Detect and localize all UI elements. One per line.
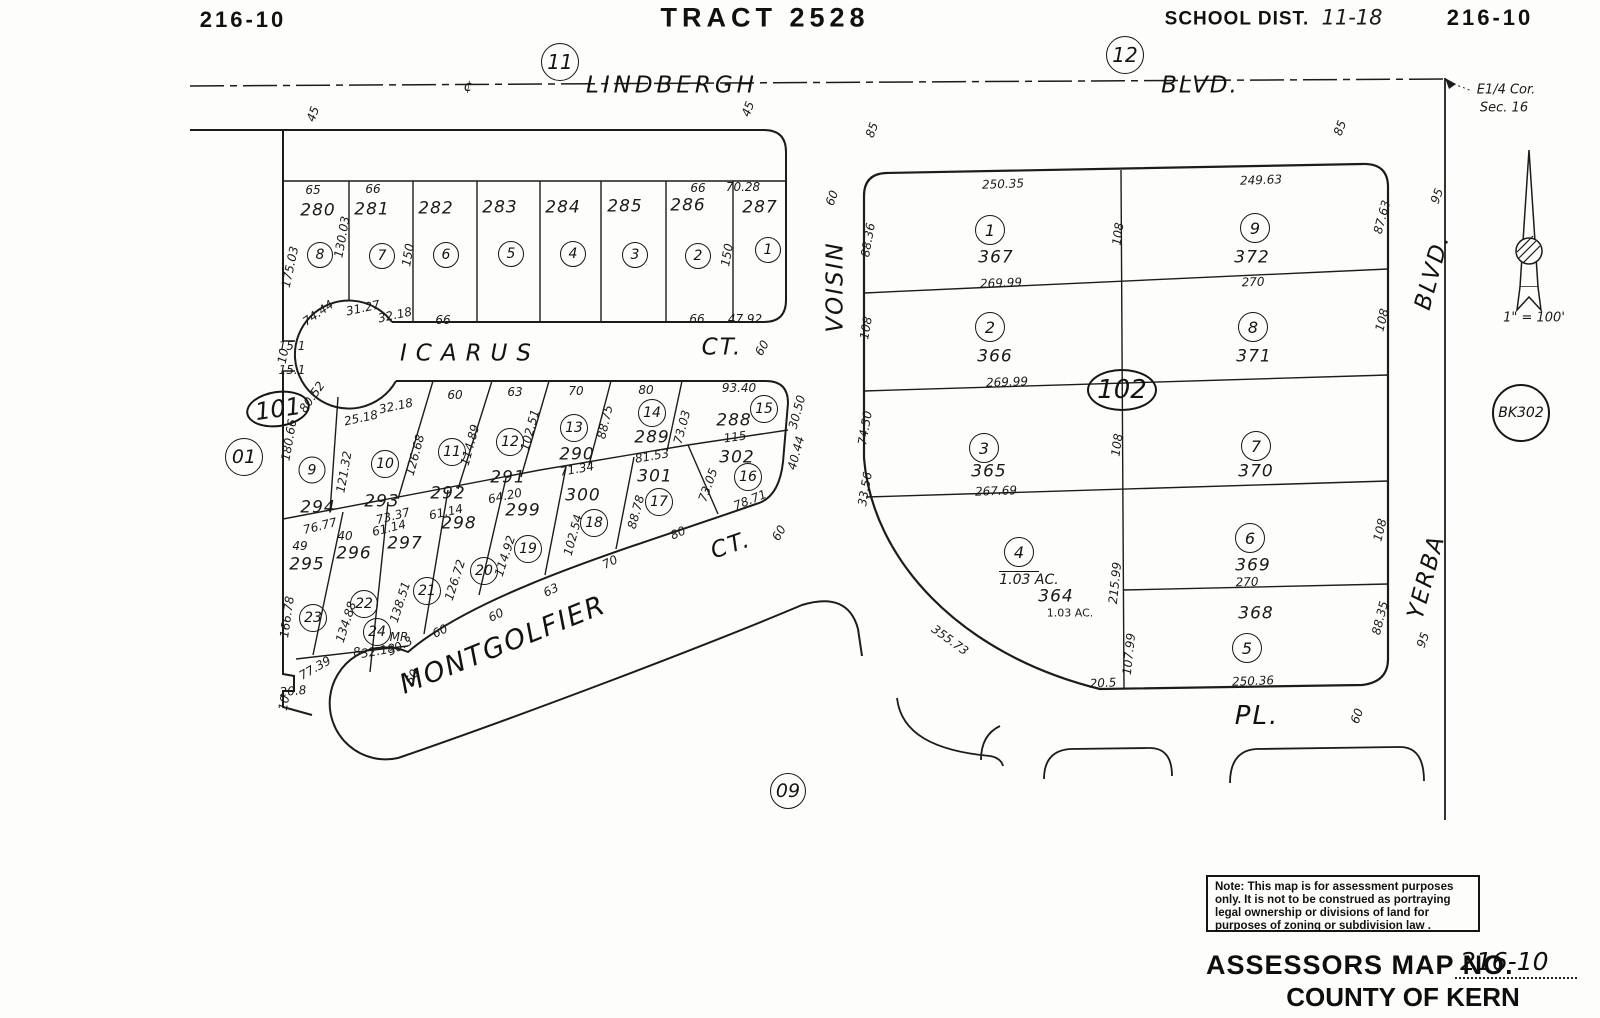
ref-circle-11: 11 [541,43,579,81]
ref-circle-01: 01 [225,438,263,476]
map-dimension-label: 364 [1038,589,1073,606]
map-dimension-label: 366 [977,349,1012,366]
corner-note-line2: Sec. 16 [1480,102,1528,115]
parcel-circle-7: 7 [369,243,395,269]
parcel-circle-16: 16 [734,463,762,491]
parcel-circle-9: 9 [299,457,326,484]
map-dimension-label: 287 [742,200,777,217]
map-dimension-label: 108 [1109,433,1124,457]
parcel-circle-14: 14 [638,399,666,427]
map-dimension-label: 293 [364,494,399,511]
map-dimension-label: 267.69 [975,484,1017,497]
map-dimension-label: 47.92 [728,313,762,325]
book-ref-circle: BK302 [1492,384,1550,442]
county-title: COUNTY OF KERN [1283,984,1523,1010]
map-dimension-label: 296 [336,546,371,563]
map-number-underline [1455,977,1577,979]
street-icarus-ct: CT. [702,337,743,360]
right-block-outline [864,164,1388,689]
map-dimension-label: 250.36 [1232,674,1274,687]
map-dimension-label: 49 [292,540,307,552]
parcel-circle-12: 12 [496,428,524,456]
map-dimension-label: 284 [545,200,580,217]
parcel-circle-6: 6 [1235,523,1265,553]
map-dimension-label: 70.28 [726,181,760,193]
map-dimension-label: 280 [300,203,335,220]
scale-note: 1" = 100' [1503,312,1565,325]
map-dimension-label: 150 [400,243,416,268]
map-dimension-label: 300 [565,488,600,505]
map-dimension-label: 269.99 [980,276,1022,289]
parcel-circle-17: 17 [645,488,673,516]
map-dimension-label: 270 [1235,576,1258,589]
map-dimension-label: 60 [447,389,462,401]
map-dimension-label: 301 [637,469,672,486]
map-dimension-label: 289 [634,430,669,447]
parcel-circle-7: 7 [1241,431,1271,461]
parcel-circle-6: 6 [433,242,459,268]
north-arrow-icon [1516,150,1542,310]
map-dimension-label: 292 [430,486,465,503]
centerline-symbol: ¢ [464,80,473,94]
map-dimension-label: 10 [277,694,291,711]
right-block-h1 [864,269,1388,293]
parcel-circle-5: 5 [498,241,524,267]
sheet-number-right: 216-10 [1447,7,1534,29]
street-voisin: VOISIN [825,241,848,332]
map-dimension-label: 298 [441,516,476,533]
lot-364-acreage-2: 1.03 AC. [1047,608,1094,619]
map-dimension-label: 285 [607,199,642,216]
map-dimension-label: 66 [690,182,705,194]
map-dimension-label: 108 [1110,222,1125,246]
block-oval-102: 102 [1087,369,1157,411]
map-dimension-label: 250.35 [982,177,1024,190]
map-dimension-label: 367 [978,250,1013,267]
map-dimension-label: 66 [435,314,450,326]
parcel-circle-5: 5 [1232,633,1262,663]
map-dimension-label: 249.63 [1240,173,1282,186]
map-dimension-label: 270 [1241,276,1264,289]
bottom-corner-arcs [897,698,1424,783]
map-dimension-label: 368 [1238,606,1273,623]
assessment-note-box: Note: This map is for assessment purpose… [1206,875,1480,932]
map-dimension-label: 297 [387,536,422,553]
map-dimension-label: 291 [490,470,525,487]
parcel-circle-19: 19 [514,535,542,563]
parcel-circle-21: 21 [413,577,441,605]
map-dimension-label: 286 [670,198,705,215]
school-district-value: 11-18 [1321,8,1382,29]
parcel-circle-10: 10 [371,450,399,478]
map-dimension-label: 365 [971,464,1006,481]
parcel-circle-4: 4 [1004,537,1034,567]
map-dimension-label: 66 [689,313,704,325]
map-dimension-label: 66 [365,183,380,195]
parcel-circle-4: 4 [560,241,586,267]
map-dimension-label: 299 [505,503,540,520]
map-dimension-label: 65 [305,184,320,196]
map-dimension-label: 93.40 [722,382,756,394]
left-block-north-east [190,130,786,322]
right-block-h3 [866,481,1388,497]
parcel-circle-22: 22 [350,590,378,618]
parcel-circle-2: 2 [685,243,711,269]
map-dimension-label: 371 [1236,349,1271,366]
map-dimension-label: 115 [723,429,747,444]
map-dimension-label: 295 [289,557,324,574]
e14-corner-arrow [1445,78,1456,89]
parcel-circle-15: 15 [750,395,778,423]
map-dimension-label: 15.1 [279,364,306,376]
map-dimension-label: 369 [1235,558,1270,575]
lot-364-acreage: 1.03 AC. [999,573,1058,587]
map-dimension-label: 281 [354,202,389,219]
parcel-circle-20: 20 [470,557,498,585]
ref-circle-09: 09 [770,773,806,809]
map-dimension-label: 282 [418,201,453,218]
circle-underline [999,571,1039,572]
parcel-circle-3: 3 [969,433,999,463]
map-dimension-label: 80 [638,384,653,396]
parcel-circle-8: 8 [1238,312,1268,342]
parcel-circle-1: 1 [975,215,1005,245]
street-pl: PL. [1235,703,1279,729]
map-dimension-label: 370 [1238,464,1273,481]
sheet-number-left: 216-10 [200,9,287,31]
mr-note: MR [390,631,409,643]
map-dimension-label: 294 [300,500,335,517]
lindbergh-centerline [190,79,1443,86]
parcel-circle-9: 9 [1240,213,1270,243]
street-lindbergh-blvd: BLVD. [1161,75,1239,98]
map-dimension-label: 70 [568,385,583,397]
parcel-circle-18: 18 [580,509,608,537]
map-dimension-label: 269.99 [986,375,1028,388]
assessors-map-number: 216-10 [1460,949,1549,974]
right-block-divider [1121,170,1124,689]
parcel-circle-2: 2 [975,312,1005,342]
map-dimension-label: 40 [337,530,352,542]
parcel-circle-13: 13 [560,414,588,442]
map-dimension-label: 10 [276,347,290,364]
map-dimension-label: 108 [858,316,874,341]
ref-circle-12: 12 [1106,36,1144,74]
school-district-label: SCHOOL DIST. [1165,10,1310,29]
parcel-circle-24: 24 [363,618,391,646]
map-dimension-label: 150 [719,243,735,268]
tract-title: TRACT 2528 [660,5,869,32]
parcel-circle-23: 23 [299,604,327,632]
map-dimension-label: 283 [482,200,517,217]
street-icarus: ICARUS [400,343,540,366]
corner-note-line1: E1/4 Cor. [1477,84,1536,97]
assessor-map-page: 216-10TRACT 2528SCHOOL DIST.11-18216-10E… [0,0,1600,1018]
map-dimension-label: 288 [716,413,751,430]
map-linework [0,0,1600,1018]
map-dimension-label: 290 [559,447,594,464]
map-dimension-label: 372 [1234,250,1269,267]
parcel-circle-3: 3 [622,242,648,268]
map-dimension-label: 63 [507,386,522,398]
parcel-circle-11: 11 [438,438,466,466]
parcel-circle-1: 1 [755,237,781,263]
street-lindbergh: LINDBERGH [586,75,758,98]
parcel-circle-8: 8 [307,242,333,268]
map-dimension-label: 20.5 [1089,676,1116,689]
